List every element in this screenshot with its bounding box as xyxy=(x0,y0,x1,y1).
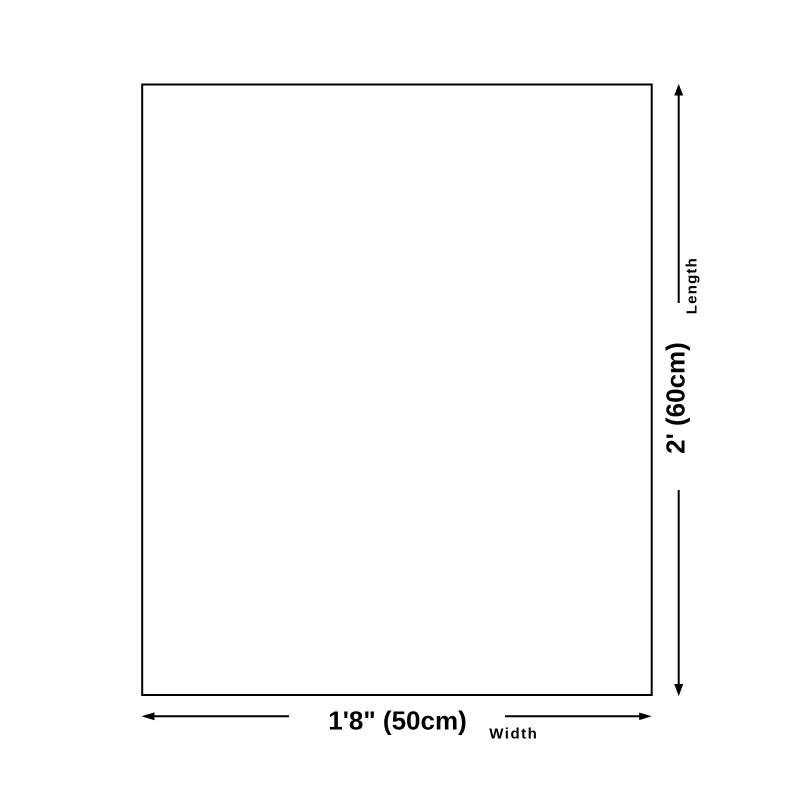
svg-text:Width: Width xyxy=(489,726,538,743)
svg-text:1'8" (50cm): 1'8" (50cm) xyxy=(328,706,466,736)
svg-text:2' (60cm): 2' (60cm) xyxy=(661,342,691,454)
svg-text:Length: Length xyxy=(683,257,700,314)
